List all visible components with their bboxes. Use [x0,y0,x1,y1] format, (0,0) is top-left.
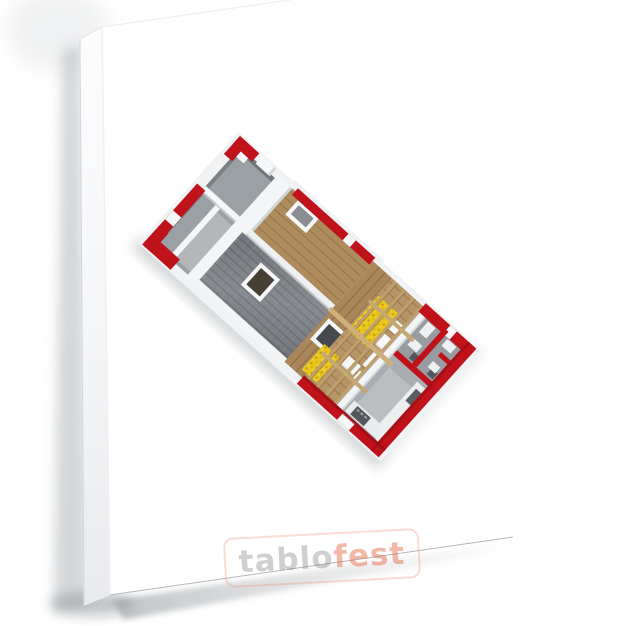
canvas-mockup [0,0,626,626]
product-photo: tablofest [0,0,626,626]
